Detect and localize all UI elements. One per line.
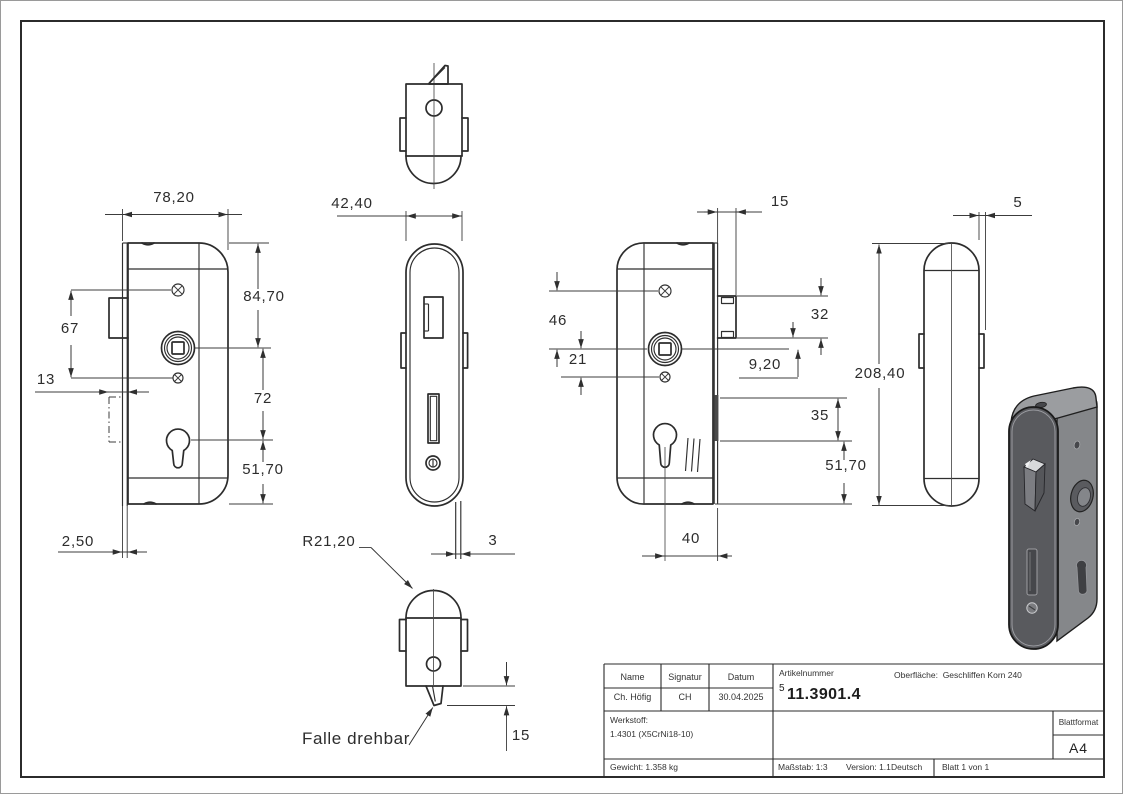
title-col-signature: Signatur — [661, 673, 709, 683]
view-bottom — [400, 589, 468, 706]
title-col-name: Name — [604, 673, 661, 683]
dim-plate-thickness-2-50: 2,50 — [55, 534, 101, 551]
title-version: Version: 1.1 — [846, 763, 891, 772]
drawing-sheet: 78,20 42,40 84,70 67 13 72 51,70 2,50 3 … — [0, 0, 1123, 794]
dim-plate-height-208-40: 208,40 — [848, 366, 912, 383]
surface-value: Geschliffen Korn 240 — [943, 670, 1022, 680]
dim-9-20: 9,20 — [740, 357, 790, 374]
dim-tab-depth-5: 5 — [1002, 195, 1034, 212]
dim-screw-spindle-46: 46 — [540, 313, 576, 330]
title-language: Deutsch — [891, 763, 922, 772]
surface-label: Oberfläche: — [894, 670, 938, 680]
article-number-value: 11.3901.4 — [787, 686, 861, 703]
title-name-value: Ch. Höfig — [604, 693, 661, 703]
title-format-value: A4 — [1053, 741, 1104, 756]
title-weight: Gewicht: 1.358 kg — [610, 763, 678, 772]
title-date-value: 30.04.2025 — [709, 693, 773, 703]
title-surface: Oberfläche: Geschliffen Korn 240 — [894, 671, 1022, 680]
dim-spindle-keyhole-72: 72 — [245, 391, 281, 408]
dim-keyhole-bottom-left: 51,70 — [233, 462, 293, 479]
dim-offset-13: 13 — [28, 372, 64, 389]
dim-keyhole-bottom-right: 51,70 — [816, 458, 876, 475]
title-scale: Maßstab: 1:3 — [778, 763, 828, 772]
dim-bolt-35: 35 — [802, 408, 838, 425]
dim-spindle-screw-21: 21 — [560, 352, 596, 369]
title-col-date: Datum — [709, 673, 773, 683]
dim-latch-height-32: 32 — [802, 307, 838, 324]
dim-height-84-70: 84,70 — [236, 289, 292, 306]
title-article-number: 511.3901.4 — [779, 683, 861, 704]
view-front-right — [617, 243, 736, 504]
dim-plate-thickness-3: 3 — [478, 533, 508, 550]
dim-latch-15-top: 15 — [762, 194, 798, 211]
title-sheet: Blatt 1 von 1 — [942, 763, 989, 772]
dim-plate-width: 42,40 — [322, 196, 382, 213]
title-article-label: Artikelnummer — [779, 669, 834, 678]
dim-case-width: 78,20 — [140, 190, 208, 207]
dim-radius-r21-20: R21,20 — [297, 534, 361, 551]
article-superscript: 5 — [779, 683, 785, 694]
title-format-label: Blattformat — [1053, 718, 1104, 727]
title-material-label: Werkstoff: — [610, 716, 648, 725]
title-material-value: 1.4301 (X5CrNi18-10) — [610, 730, 693, 739]
view-faceplate-front — [401, 244, 468, 559]
label-falle-drehbar: Falle drehbar — [294, 730, 418, 749]
dim-screw-spacing-67: 67 — [52, 321, 88, 338]
view-faceplate-side — [919, 243, 984, 506]
view-top — [400, 63, 468, 189]
render-3d — [1009, 387, 1097, 649]
title-signature-value: CH — [661, 693, 709, 703]
dim-latch-15-bottom: 15 — [504, 728, 538, 745]
dim-backset-40: 40 — [672, 531, 710, 548]
